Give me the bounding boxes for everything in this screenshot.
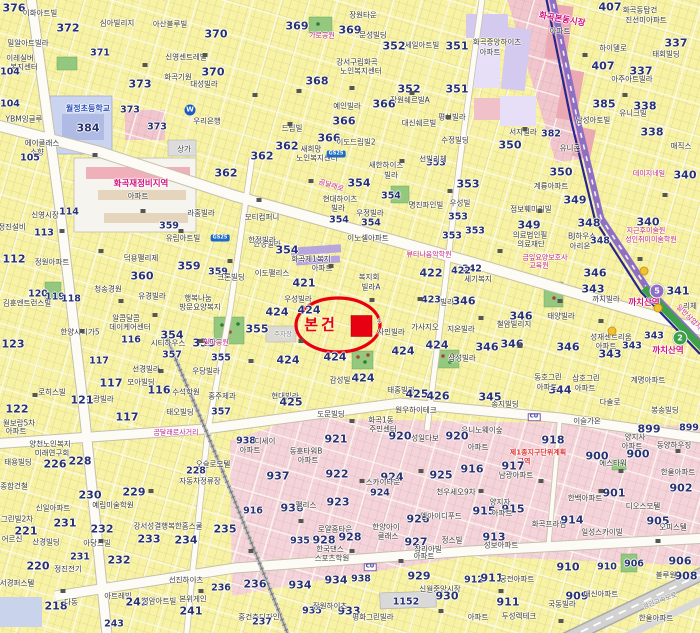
map-label: 예림미술학원: [92, 501, 133, 509]
map-label: 자동차정류장: [179, 477, 220, 485]
map-label: 918: [542, 435, 565, 446]
map-label: 양천노인복지: [29, 440, 70, 448]
map-label: 382: [541, 129, 561, 139]
map-label: 343: [582, 284, 605, 295]
map-label: 424: [266, 307, 289, 318]
map-label: 369: [286, 21, 309, 32]
map-label: 데이케어센터: [109, 323, 150, 331]
map-label: 한백아파트: [568, 494, 603, 502]
map-label: 349: [518, 220, 541, 231]
map-label: 930: [436, 591, 459, 602]
map-label: 362: [276, 141, 299, 152]
building-icon: [149, 489, 154, 493]
map-label: 360: [131, 271, 154, 282]
building-icon: [159, 369, 164, 373]
building-icon: [119, 299, 124, 303]
building-icon: [350, 549, 355, 553]
map-label: 유림아트빌: [166, 234, 201, 242]
map-label: 359: [159, 221, 179, 231]
map-label: 113: [34, 228, 54, 238]
map-label: 태오빌딩: [166, 408, 194, 416]
map-label: 홍주제과: [208, 392, 236, 400]
map-label: 디오스모텔: [626, 502, 661, 510]
map-label: 370: [202, 67, 225, 78]
map-label: 901: [603, 488, 626, 499]
building-icon: [619, 469, 624, 473]
building-icon: [399, 559, 404, 563]
map-label: 새희망: [301, 145, 322, 153]
building-icon: [329, 264, 334, 268]
building-icon: [623, 93, 628, 97]
map-label: 104: [0, 99, 20, 109]
map-label: 태회빌딩: [652, 50, 680, 58]
map-label: 이도드림빌2: [336, 138, 375, 146]
map-label: 삼호그린: [572, 374, 600, 382]
map-label: 371: [90, 48, 110, 58]
map-label: 424: [392, 346, 415, 357]
map-label: 117: [116, 412, 139, 423]
map-label: 하이델로: [599, 44, 627, 52]
map-label: 이레실버: [6, 54, 34, 62]
map-label: 117: [100, 378, 123, 389]
map-label: 지근후미술원: [627, 228, 666, 235]
map-label: 355: [211, 353, 231, 363]
map-label: 350: [550, 167, 573, 178]
map-label: 화곡1동: [368, 416, 393, 424]
map-label: 태용빌딩: [4, 458, 32, 466]
map-label: 229: [123, 487, 146, 498]
building-icon: [297, 89, 302, 93]
map-label: 346: [453, 296, 476, 307]
map-label: 곰달래로사거리: [153, 430, 198, 437]
map-label: 일성스카이빌: [581, 528, 622, 536]
map-label: 양지사: [625, 433, 646, 441]
building-icon: [583, 53, 588, 57]
map-label: 아파트: [128, 192, 149, 200]
building-icon: [400, 159, 405, 163]
map-label: 까치빌라: [592, 295, 620, 303]
map-label: 이도팰리스: [255, 269, 290, 277]
map-label: 아파트: [492, 509, 513, 517]
map-label: 다솔로: [600, 398, 621, 406]
map-label: 아파트: [480, 48, 501, 56]
map-label: 의료재단: [517, 240, 545, 248]
map-label: 크론빌딩: [217, 273, 245, 281]
map-label: 원우하이테크: [395, 406, 436, 414]
map-label: 방문요양복지: [179, 303, 220, 311]
building-icon: [350, 419, 355, 423]
map-label: 385: [593, 99, 616, 110]
building-icon: [203, 53, 208, 57]
map-label: 아파트: [6, 427, 27, 435]
map-label: 종합건철: [0, 482, 28, 490]
cu-icon: CU: [364, 563, 377, 571]
building-icon: [479, 316, 484, 320]
building-icon: [638, 257, 643, 261]
map-label: 369: [339, 25, 362, 36]
map-label: 오피스텔: [659, 523, 687, 531]
building-icon: [153, 313, 158, 317]
map-label: 양지자: [490, 498, 511, 506]
map-label: 주차장: [274, 331, 292, 338]
building-icon: [419, 469, 424, 473]
map-label: 아산블루빌: [153, 20, 188, 28]
map-label: 353: [448, 212, 468, 222]
map-label: 911: [497, 597, 520, 608]
map-label: 매직스: [671, 142, 692, 150]
map-label: 112: [3, 254, 26, 265]
map-label: 산경빌딩: [32, 538, 60, 546]
map-label: 아파트: [298, 456, 319, 464]
building-icon: [179, 229, 184, 233]
map-label: 의료법인필: [513, 231, 548, 239]
map-label: 346: [557, 342, 580, 353]
map-label: 354: [381, 191, 401, 201]
map-label: 두성렉테크: [502, 612, 537, 620]
map-label: 사민빌라: [377, 328, 405, 336]
map-label: 116: [121, 335, 141, 345]
map-label: 모티컴퍼니: [245, 213, 280, 221]
map-label: 김훈엔트런스빌: [3, 299, 51, 307]
map-label: 373: [129, 79, 152, 90]
map-label: 유니콘: [560, 144, 581, 152]
line5-icon: 5: [650, 284, 665, 299]
map-label: 338: [634, 101, 657, 112]
map-label: 대신쉐르빌: [402, 119, 437, 127]
building-icon: [199, 589, 204, 593]
map-label: 105: [20, 153, 40, 163]
map-label: 236: [244, 579, 267, 590]
map-label: 팰리스: [296, 501, 317, 509]
map-label: 424: [352, 373, 375, 384]
map-label: 가로공원: [309, 33, 335, 40]
map-label: 화곡기원: [164, 73, 192, 81]
map-label: 236: [211, 583, 231, 593]
map-label: 그린빌2차: [1, 515, 33, 523]
map-label: 대성빌라: [190, 80, 218, 88]
building-icon: [558, 299, 563, 303]
map-label: 덕용팰리제: [124, 254, 159, 262]
map-label: 357: [162, 350, 182, 360]
building-icon: [228, 259, 233, 263]
map-label: 진선미아파트: [625, 16, 666, 24]
map-label: 351: [446, 84, 469, 95]
map-label: 명진파인빌: [409, 201, 444, 209]
map-label: 세기복지: [464, 275, 492, 283]
building-icon: [518, 344, 523, 348]
map-label: 121: [71, 395, 94, 406]
map-label: 삼성빌라: [448, 354, 476, 362]
map-label: 230: [79, 490, 102, 501]
map-label: 빌라: [384, 171, 398, 179]
map-label: 화곡동탑건: [623, 6, 658, 14]
building-icon: [249, 359, 254, 363]
building-icon: [499, 589, 504, 593]
map-label: 232: [91, 524, 114, 535]
map-label: 407: [599, 2, 622, 13]
map-label: 복지회: [359, 273, 380, 281]
map-label: 228: [69, 456, 92, 467]
map-label: 352: [383, 41, 406, 52]
map-label: 로히스빌: [38, 388, 66, 396]
map-label: 남성아토빌: [576, 116, 611, 124]
map-label: 계명아파트: [631, 376, 666, 384]
map-label: 한양아이: [372, 523, 400, 531]
map-label: 정스빌: [442, 536, 463, 544]
map-label: 금잎요양보호사: [522, 255, 567, 262]
map-label: 425: [280, 397, 303, 408]
map-label: 925: [430, 470, 453, 481]
map-label: 355: [246, 324, 269, 335]
map-label: 천우세오9차: [436, 488, 475, 496]
map-label: 243: [104, 619, 124, 629]
map-label: 신일아파트: [36, 504, 71, 512]
map-label: 문성빌딩: [359, 31, 387, 39]
map-label: 900: [627, 449, 650, 460]
map-label: 뷰티나음악학원: [406, 252, 451, 259]
building-icon: [61, 589, 66, 593]
map-label: 미래연구회: [35, 449, 70, 457]
building-icon: [288, 122, 293, 126]
map-label: 유경빌라: [138, 292, 166, 300]
map-label: 934: [289, 580, 312, 591]
map-label: 국동빌라: [548, 600, 576, 608]
map-label: 지온빌라: [447, 325, 475, 333]
building-icon: [523, 127, 528, 131]
map-label: 평선빌라: [438, 113, 466, 121]
map-label: 시티하우스: [151, 339, 186, 347]
map-label: 350: [499, 140, 522, 151]
map-label: 동훈타워B: [290, 447, 323, 455]
map-label: 425: [406, 389, 429, 400]
map-label: 필마공원: [203, 340, 229, 347]
map-label: 348: [590, 236, 610, 246]
map-label: 920: [446, 431, 469, 442]
map-label: 장원하이츠: [313, 602, 348, 610]
map-label: 노인복지센터: [340, 67, 381, 75]
building-icon: [199, 339, 204, 343]
bank-icon: W: [185, 105, 196, 116]
building-icon: [350, 86, 355, 90]
building-icon: [60, 229, 65, 233]
map-label: 902: [670, 483, 693, 494]
map-label: 226: [44, 459, 67, 470]
map-label: 강서구립화곡: [336, 58, 377, 66]
map-label: YBM잉글루: [6, 115, 43, 123]
map-label: 성암아트빌: [142, 597, 177, 605]
building-icon: [599, 489, 604, 493]
cu-icon: CU: [528, 413, 541, 421]
map-label: 정진전기: [54, 565, 82, 573]
building-icon: [599, 319, 604, 323]
gs25-icon: GS25: [211, 235, 230, 242]
map-label: 본위게인: [179, 595, 207, 603]
map-label: 354: [361, 218, 381, 228]
map-label: 421: [293, 278, 316, 289]
map-label: 357: [211, 407, 231, 417]
map-label: 241: [180, 606, 203, 617]
building-icon: [410, 91, 415, 95]
map-label: 클래스: [378, 532, 399, 540]
map-label: 에이클래스: [25, 139, 60, 147]
map-label: 929: [408, 571, 431, 582]
map-label: 353: [465, 226, 485, 236]
map-label: 선빌리체: [419, 155, 447, 163]
bus-icon: [654, 304, 663, 313]
map-label: 동호그린: [534, 373, 562, 381]
map-label: 359: [178, 261, 201, 272]
building-icon: [439, 609, 444, 613]
building-icon: [479, 489, 484, 493]
map-label: 938: [351, 574, 371, 584]
building-icon: [143, 63, 148, 67]
map-label: 423: [421, 295, 441, 305]
building-icon: [309, 179, 314, 183]
map-label: 424: [426, 340, 449, 351]
building-icon: [656, 539, 661, 543]
building-icon: [99, 249, 104, 253]
building-icon: [446, 115, 451, 119]
map-label: 343: [599, 349, 622, 360]
map-label: 422: [451, 266, 471, 276]
map-label: 123: [2, 339, 25, 350]
map-label: 349: [564, 195, 587, 206]
map-label: 월정초등학교: [66, 105, 110, 113]
map-label: 351: [446, 41, 469, 52]
map-label: 928: [339, 532, 362, 543]
bus-icon: [640, 267, 649, 276]
map-label: 밀알아트빌라: [7, 39, 48, 47]
map-label: 알콤달콤: [112, 314, 140, 322]
map-label: 424: [324, 352, 347, 363]
map-label: 116: [148, 385, 171, 396]
map-label: 신영센트레빌: [165, 53, 206, 61]
map-label: 372: [57, 23, 80, 34]
building-icon: [559, 619, 564, 623]
map-label: 블루원: [656, 571, 677, 579]
map-label: 강서성결행복한홈스쿨: [134, 522, 203, 530]
map-label: 233: [138, 534, 161, 545]
map-label: 이노셀아파트: [347, 234, 388, 242]
map-label: 424: [277, 355, 300, 366]
map-label: 스포츠학원: [315, 554, 350, 562]
map-label: 353: [442, 231, 462, 241]
map-label: 384: [77, 123, 100, 134]
building-icon: [676, 449, 681, 453]
map-label: 정원아파트: [35, 258, 70, 266]
map-label: 922: [326, 469, 349, 480]
building-icon: [249, 549, 254, 553]
map-label: 까치산역: [652, 347, 683, 356]
map-label: 행복나눔: [184, 294, 212, 302]
map-label: 점보훼미리빌: [510, 205, 551, 213]
map-label: 태양빌라: [547, 312, 575, 320]
map-label: 353: [457, 179, 480, 190]
map-label: 348: [578, 218, 601, 229]
map-label: 교육원: [529, 263, 548, 270]
map-label: 수석학원: [172, 388, 200, 396]
map-label: 성보아파트: [484, 541, 519, 549]
map-label: 924: [370, 488, 390, 498]
map-label: 아파트: [468, 613, 489, 621]
map-label: 감성빌: [330, 376, 351, 384]
map-label: 성인취미미술학원: [625, 237, 677, 244]
map-label: 346: [476, 342, 499, 353]
cadastral-map[interactable]: 376이화아트빌372371심아빌리지아산블루빌370밀알아트빌라이레실버복지센…: [0, 0, 700, 633]
map-label: 동양하우징: [657, 441, 692, 449]
map-label: 아주아트빌라: [611, 75, 652, 83]
map-label: 성일다보: [411, 434, 439, 442]
map-label: 아파트: [575, 384, 596, 392]
map-label: 920: [389, 431, 412, 442]
map-label: 계룡아파트: [534, 182, 569, 190]
map-label: 122: [6, 404, 29, 415]
map-label: 914: [561, 515, 584, 526]
map-label: 906: [624, 559, 644, 569]
map-label: 엘아이디푸드: [420, 512, 461, 520]
map-label: 228: [186, 466, 206, 476]
subject-label: 본건: [304, 314, 338, 335]
map-label: 934: [325, 575, 348, 586]
map-label: 923: [327, 497, 350, 508]
map-label: 이화아트빌: [23, 9, 58, 17]
building-icon: [257, 198, 262, 202]
map-label: 231: [70, 552, 90, 562]
map-label: 아파트: [550, 27, 571, 35]
map-label: 선경빌라: [132, 365, 160, 373]
map-label: 궁전아파트: [500, 575, 535, 583]
map-label: 정진설비: [0, 223, 26, 231]
map-label: 407: [592, 61, 615, 72]
map-label: 362: [215, 168, 238, 179]
map-label: 아리온: [570, 242, 591, 250]
map-label: 서경퍼스텔: [0, 579, 34, 587]
line2-icon: 2: [673, 331, 688, 346]
map-label: 370: [205, 29, 228, 40]
map-label: 916: [461, 464, 484, 475]
map-label: 도문빌딩: [317, 410, 345, 418]
map-label: 426: [427, 391, 450, 402]
building-icon: [538, 209, 543, 213]
map-label: 220: [27, 561, 50, 572]
map-label: 340: [674, 170, 697, 181]
map-label: 346: [584, 268, 607, 279]
map-label: 337: [665, 38, 688, 49]
map-label: 한국댄스: [316, 545, 344, 553]
map-label: 910: [597, 562, 617, 572]
map-label: 118: [61, 294, 81, 304]
map-label: 상가: [177, 145, 191, 153]
map-label: 새한하이츠: [369, 161, 404, 169]
map-label: 철암빌리지: [497, 320, 532, 328]
map-label: 373: [120, 105, 140, 115]
map-label: 366: [373, 99, 396, 110]
bus-icon: [608, 327, 617, 336]
map-label: 수정빌딩: [441, 136, 469, 144]
map-label: 장원쉐르빌A: [390, 96, 430, 104]
map-label: 910: [557, 562, 580, 573]
map-label: 366: [333, 116, 356, 127]
map-label: 디세이: [255, 437, 276, 445]
building-icon: [141, 209, 146, 213]
map-label: 대신아파트: [584, 590, 619, 598]
building-icon: [299, 519, 304, 523]
building-icon: [498, 249, 503, 253]
map-label: 화곡제1복지: [291, 255, 330, 263]
map-label: 남광아파트: [499, 471, 534, 479]
map-label: 354: [329, 215, 349, 225]
map-label: 빌라: [331, 204, 345, 212]
